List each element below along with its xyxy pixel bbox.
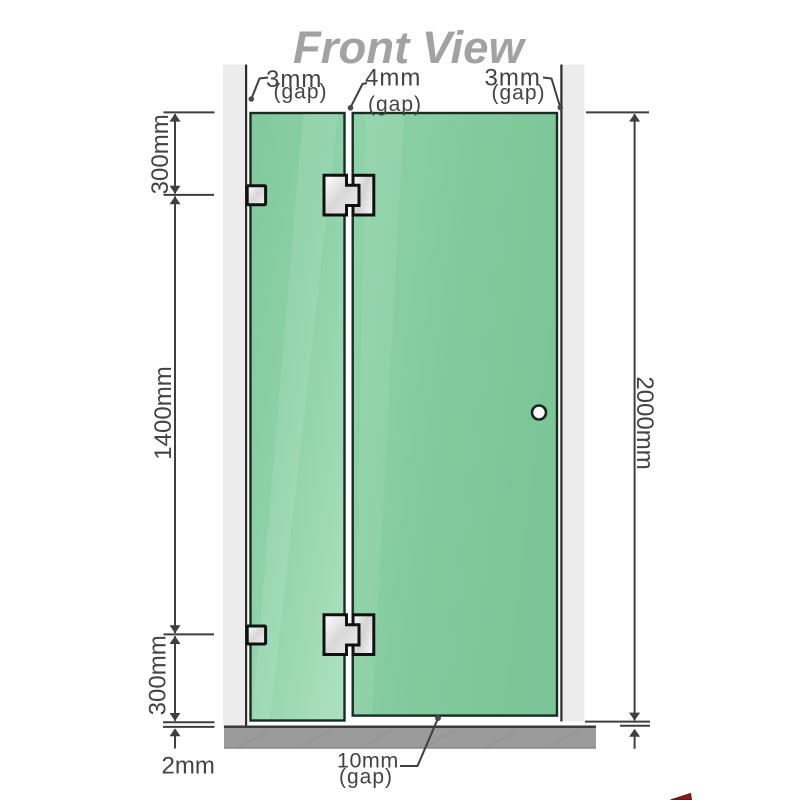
svg-text:(gap): (gap) xyxy=(274,81,328,104)
svg-text:4mm: 4mm xyxy=(365,65,421,92)
svg-text:(gap): (gap) xyxy=(368,93,422,116)
svg-text:(gap): (gap) xyxy=(339,766,393,789)
svg-text:300mm: 300mm xyxy=(147,114,174,194)
svg-text:1400mm: 1400mm xyxy=(150,366,177,459)
svg-text:(gap): (gap) xyxy=(492,82,546,105)
svg-text:300mm: 300mm xyxy=(145,635,172,715)
svg-text:2000mm: 2000mm xyxy=(631,376,658,469)
svg-text:2mm: 2mm xyxy=(162,753,215,780)
